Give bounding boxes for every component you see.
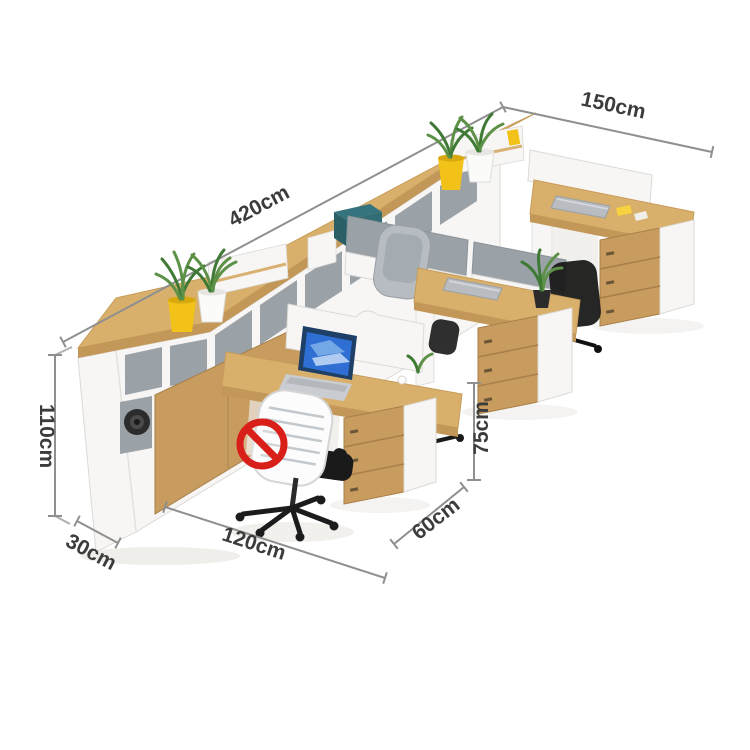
prohibition-icon	[240, 422, 284, 466]
label-counter-height: 110cm	[35, 404, 58, 468]
label-return-length: 150cm	[579, 88, 648, 124]
speaker	[124, 409, 150, 435]
label-desk-height: 75cm	[470, 401, 493, 455]
desk-cup	[398, 376, 406, 384]
workstation-diagram: 420cm 150cm 110cm 30cm 120cm 60cm 75cm	[0, 0, 750, 750]
product-image: 420cm 150cm 110cm 30cm 120cm 60cm 75cm	[0, 0, 750, 750]
